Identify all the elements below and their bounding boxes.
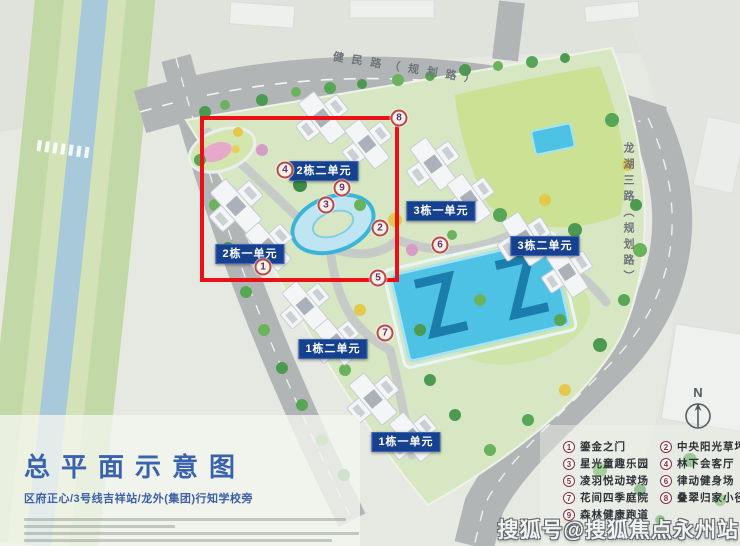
disclaimer-lines xyxy=(24,518,359,546)
legend-item-5: 5凌羽悦动球场 xyxy=(563,474,660,487)
unit-label: 2栋一单元 xyxy=(215,244,284,264)
road-label-longhu: 龙湖三路（规划路） xyxy=(620,142,636,286)
legend-label: 鎏金之门 xyxy=(580,439,626,454)
legend-item-7: 7花间四季庭院 xyxy=(563,491,660,504)
unit-label: 2栋二单元 xyxy=(289,161,358,181)
legend-item-2: 2中央阳光草坪 xyxy=(660,440,740,453)
map-marker-1: 1 xyxy=(255,259,272,276)
legend-label: 中央阳光草坪 xyxy=(677,439,740,454)
legend-label: 花间四季庭院 xyxy=(580,490,649,505)
title-panel: 总平面示意图 区府正心/3号线吉祥站/龙外(集团)行知学校旁 xyxy=(24,447,359,546)
map-marker-2: 2 xyxy=(372,220,389,237)
legend-item-1: 1鎏金之门 xyxy=(563,440,660,453)
legend-marker-icon: 2 xyxy=(660,441,672,453)
legend-marker-icon: 1 xyxy=(563,441,575,453)
legend-item-3: 3星光童趣乐园 xyxy=(563,457,660,470)
north-label: N xyxy=(676,386,720,399)
page-title: 总平面示意图 xyxy=(24,447,359,484)
map-marker-9: 9 xyxy=(334,180,351,197)
legend-marker-icon: 5 xyxy=(563,475,575,487)
map-marker-4: 4 xyxy=(277,162,294,179)
north-arrow-icon xyxy=(683,400,713,432)
unit-label: 3栋一单元 xyxy=(406,201,475,221)
map-marker-7: 7 xyxy=(377,325,394,342)
site-plan-canvas: 健民路（规划路） 龙湖三路（规划路） 2栋二单元2栋一单元3栋一单元3栋二单元1… xyxy=(0,0,740,546)
legend-marker-icon: 3 xyxy=(563,458,575,470)
watermark: 搜狐号@搜狐焦点永州站 xyxy=(498,514,739,544)
legend-item-8: 8叠翠归家小径 xyxy=(660,491,740,504)
map-marker-6: 6 xyxy=(432,237,449,254)
legend-item-6: 6律动健身场 xyxy=(660,474,740,487)
map-marker-3: 3 xyxy=(318,197,335,214)
legend-label: 林下会客厅 xyxy=(677,456,735,471)
map-marker-5: 5 xyxy=(370,270,387,287)
legend-label: 星光童趣乐园 xyxy=(580,456,649,471)
legend-marker-icon: 7 xyxy=(563,492,575,504)
map-marker-8: 8 xyxy=(391,110,408,127)
legend-label: 凌羽悦动球场 xyxy=(580,473,649,488)
legend-marker-icon: 6 xyxy=(660,475,672,487)
page-subtitle: 区府正心/3号线吉祥站/龙外(集团)行知学校旁 xyxy=(24,490,359,506)
legend-marker-icon: 4 xyxy=(660,458,672,470)
legend-label: 叠翠归家小径 xyxy=(677,490,740,505)
legend-marker-icon: 8 xyxy=(660,492,672,504)
legend-label: 律动健身场 xyxy=(677,473,735,488)
legend-item-4: 4林下会客厅 xyxy=(660,457,740,470)
unit-label: 3栋二单元 xyxy=(510,236,579,256)
legend: 1鎏金之门2中央阳光草坪3星光童趣乐园4林下会客厅5凌羽悦动球场6律动健身场7花… xyxy=(563,440,740,521)
unit-label: 1栋一单元 xyxy=(371,432,440,452)
north-indicator: N xyxy=(676,386,720,437)
unit-label: 1栋二单元 xyxy=(298,339,367,359)
